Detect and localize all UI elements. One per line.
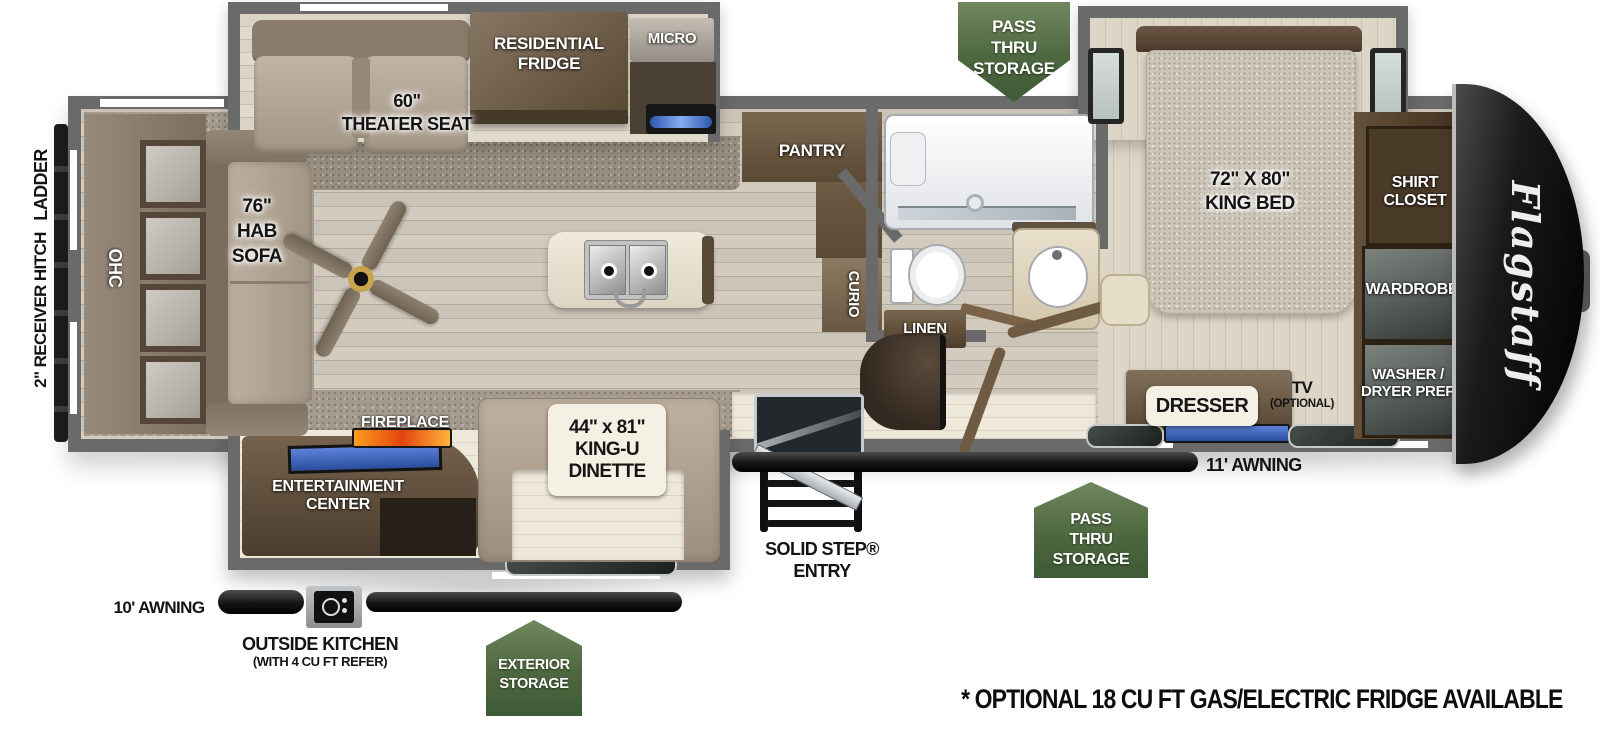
curio-label: CURIO <box>842 244 862 344</box>
ohc-window-4 <box>140 356 206 424</box>
outlet-icon <box>342 598 347 603</box>
toilet-bowl <box>908 244 966 306</box>
tv-optional-label: TV (OPTIONAL) <box>1262 378 1342 411</box>
pantry-label: PANTRY <box>752 141 872 161</box>
dresser-label-chip: DRESSER <box>1146 386 1258 426</box>
exterior-storage-badge: EXTERIOR STORAGE <box>486 620 582 716</box>
burner-icon <box>322 598 340 616</box>
pass-thru-storage-badge-top: PASS THRU STORAGE <box>958 2 1070 102</box>
hall-door <box>860 334 946 430</box>
awning-bar-left <box>366 592 682 612</box>
floorplan-canvas: LADDER 2" RECEIVER HITCH OHC 76" HAB SOF… <box>0 0 1600 745</box>
outside-kitchen-label: OUTSIDE KITCHEN (WITH 4 CU FT REFER) <box>230 634 410 670</box>
awning-left-label: 10' AWNING <box>96 598 222 618</box>
ceiling-fan-icon <box>311 229 411 329</box>
kitchen-island-edge <box>702 236 714 304</box>
brand-logo: Flagstaff <box>1500 134 1548 434</box>
awning-bar-right <box>732 452 1198 472</box>
ohc-window-2 <box>140 212 206 280</box>
residential-fridge-lip <box>470 110 628 124</box>
optional-fridge-note: * OPTIONAL 18 CU FT GAS/ELECTRIC FRIDGE … <box>908 684 1528 715</box>
tv-on-dresser <box>1164 424 1290 443</box>
entry-mat <box>754 394 864 455</box>
ohc-label: OHC <box>103 208 125 328</box>
sofa-label: 76" HAB SOFA <box>202 194 312 269</box>
range-led-strip <box>650 116 712 128</box>
sink-drain-left <box>601 263 617 279</box>
receiver-hitch-label: 2" RECEIVER HITCH <box>31 230 53 390</box>
bath-wall-right <box>1096 109 1108 249</box>
bathtub-faucet <box>890 132 926 186</box>
sofa-cushion-divider <box>230 281 310 284</box>
theater-seat-label: 60" THEATER SEAT <box>322 90 492 136</box>
entertainment-label: ENTERTAINMENT CENTER <box>252 478 424 515</box>
king-bed-label: 72" X 80" KING BED <box>1166 168 1334 216</box>
sink-drain-right <box>641 263 657 279</box>
bathtub-drain <box>966 194 984 212</box>
fireplace-label: FIREPLACE <box>350 414 460 432</box>
window-strip-rear-wall-2 <box>70 322 77 414</box>
awning-right-label: 11' AWNING <box>1206 455 1336 476</box>
bed-bench <box>1100 274 1150 326</box>
dinette-label-chip: 44" x 81" KING-U DINETTE <box>548 404 666 496</box>
outlet-icon-2 <box>342 608 347 613</box>
entry-mat-highlight <box>754 405 864 452</box>
residential-fridge-label: RESIDENTIAL FRIDGE <box>478 34 620 73</box>
pass-thru-storage-badge-bottom: PASS THRU STORAGE <box>1034 482 1148 578</box>
window-strip-slideout-top <box>300 4 448 11</box>
ohc-window-1 <box>140 140 206 208</box>
rear-bumper <box>54 124 68 442</box>
entry-label: SOLID STEP® ENTRY <box>742 538 902 582</box>
microwave-label: MICRO <box>630 30 714 47</box>
bedroom-window-left <box>1088 48 1124 124</box>
window-strip-rear-wall-1 <box>70 150 77 250</box>
ohc-window-3 <box>140 284 206 352</box>
vanity-faucet <box>1052 250 1062 260</box>
headboard <box>1136 26 1362 52</box>
linen-label: LINEN <box>884 320 966 337</box>
awning-bar-left-cap <box>218 590 304 614</box>
washer-dryer-label: WASHER / DRYER PREP <box>1350 366 1466 401</box>
window-strip-top-rear <box>100 99 224 107</box>
bedroom-bottom-window-1 <box>1086 424 1164 448</box>
outside-kitchen-port <box>306 586 362 628</box>
bathtub-glass-door <box>898 206 1076 220</box>
sofa-armrest-bottom <box>206 402 308 436</box>
